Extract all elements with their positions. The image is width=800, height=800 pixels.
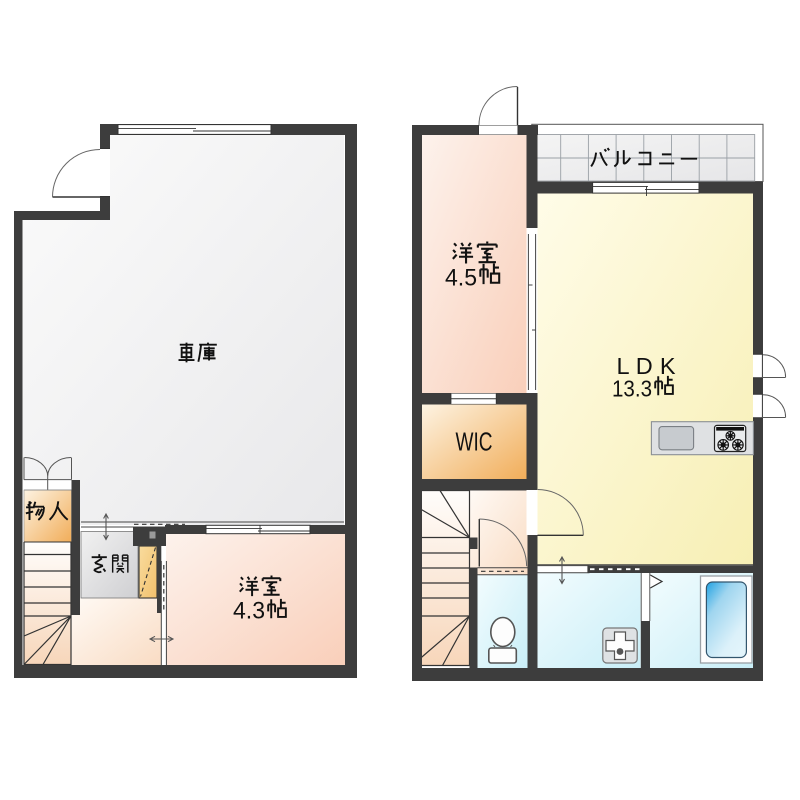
svg-text:13.3: 13.3 [612,376,652,402]
svg-text:WIC: WIC [456,427,493,457]
svg-text:4.5: 4.5 [445,265,477,292]
svg-text:4.3: 4.3 [233,598,265,625]
